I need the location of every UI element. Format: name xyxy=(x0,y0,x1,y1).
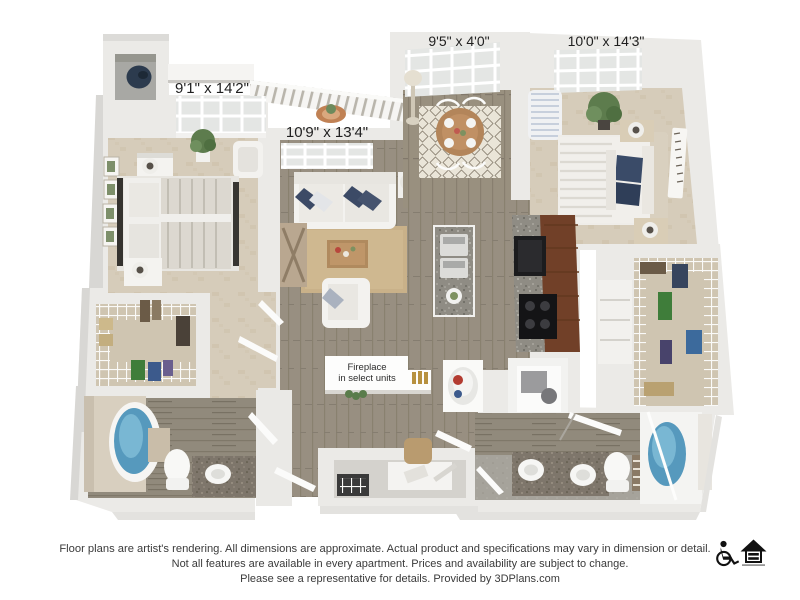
svg-text:Fireplace: Fireplace xyxy=(347,362,386,373)
svg-text:in select units: in select units xyxy=(338,373,396,384)
svg-text:9'5" x 4'0": 9'5" x 4'0" xyxy=(428,33,489,49)
svg-text:Floor plans are artist's rende: Floor plans are artist's rendering. All … xyxy=(59,543,710,555)
svg-text:Not all features are available: Not all features are available in every … xyxy=(172,558,629,570)
svg-text:10'0" x 14'3": 10'0" x 14'3" xyxy=(568,33,645,49)
svg-text:10'9" x 13'4": 10'9" x 13'4" xyxy=(286,124,368,141)
svg-text:9'1" x 14'2": 9'1" x 14'2" xyxy=(175,80,249,97)
svg-text:Please see a representative fo: Please see a representative for details.… xyxy=(240,573,560,585)
